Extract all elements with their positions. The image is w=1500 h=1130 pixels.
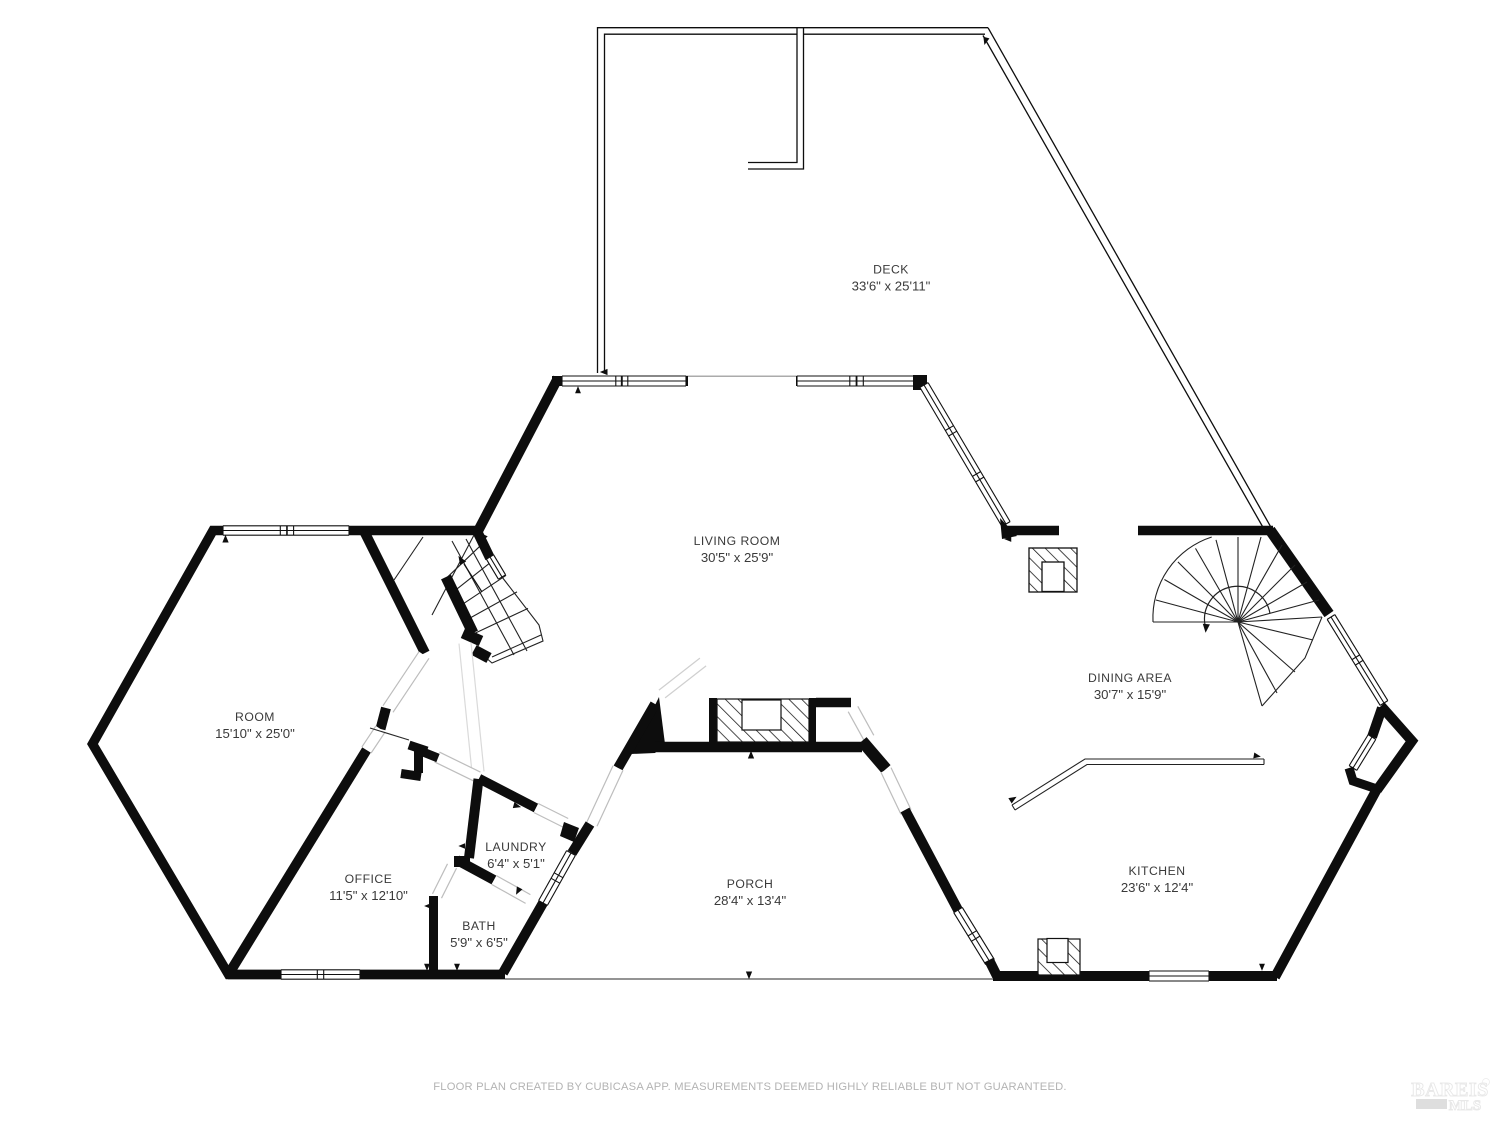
svg-text:LIVING ROOM: LIVING ROOM	[694, 534, 781, 548]
svg-text:30'7" x 15'9": 30'7" x 15'9"	[1094, 687, 1167, 702]
svg-text:23'6" x 12'4": 23'6" x 12'4"	[1121, 880, 1194, 895]
svg-text:5'9" x 6'5": 5'9" x 6'5"	[450, 935, 508, 950]
svg-text:DECK: DECK	[873, 263, 909, 277]
svg-text:MLS: MLS	[1449, 1098, 1482, 1114]
svg-text:28'4" x 13'4": 28'4" x 13'4"	[714, 893, 787, 908]
svg-text:BATH: BATH	[462, 919, 496, 933]
svg-text:6'4" x 5'1": 6'4" x 5'1"	[487, 856, 545, 871]
svg-text:ROOM: ROOM	[235, 710, 275, 724]
svg-text:11'5" x 12'10": 11'5" x 12'10"	[329, 888, 408, 903]
svg-text:30'5" x 25'9": 30'5" x 25'9"	[701, 550, 774, 565]
svg-text:33'6" x 25'11": 33'6" x 25'11"	[852, 279, 931, 294]
svg-text:FLOOR PLAN CREATED BY CUBICASA: FLOOR PLAN CREATED BY CUBICASA APP. MEAS…	[433, 1081, 1066, 1093]
svg-text:OFFICE: OFFICE	[345, 872, 393, 886]
svg-text:15'10" x 25'0": 15'10" x 25'0"	[215, 726, 295, 741]
svg-text:KITCHEN: KITCHEN	[1129, 864, 1186, 878]
svg-text:PORCH: PORCH	[727, 877, 774, 891]
svg-text:DINING AREA: DINING AREA	[1088, 671, 1172, 685]
svg-text:LAUNDRY: LAUNDRY	[485, 840, 547, 854]
